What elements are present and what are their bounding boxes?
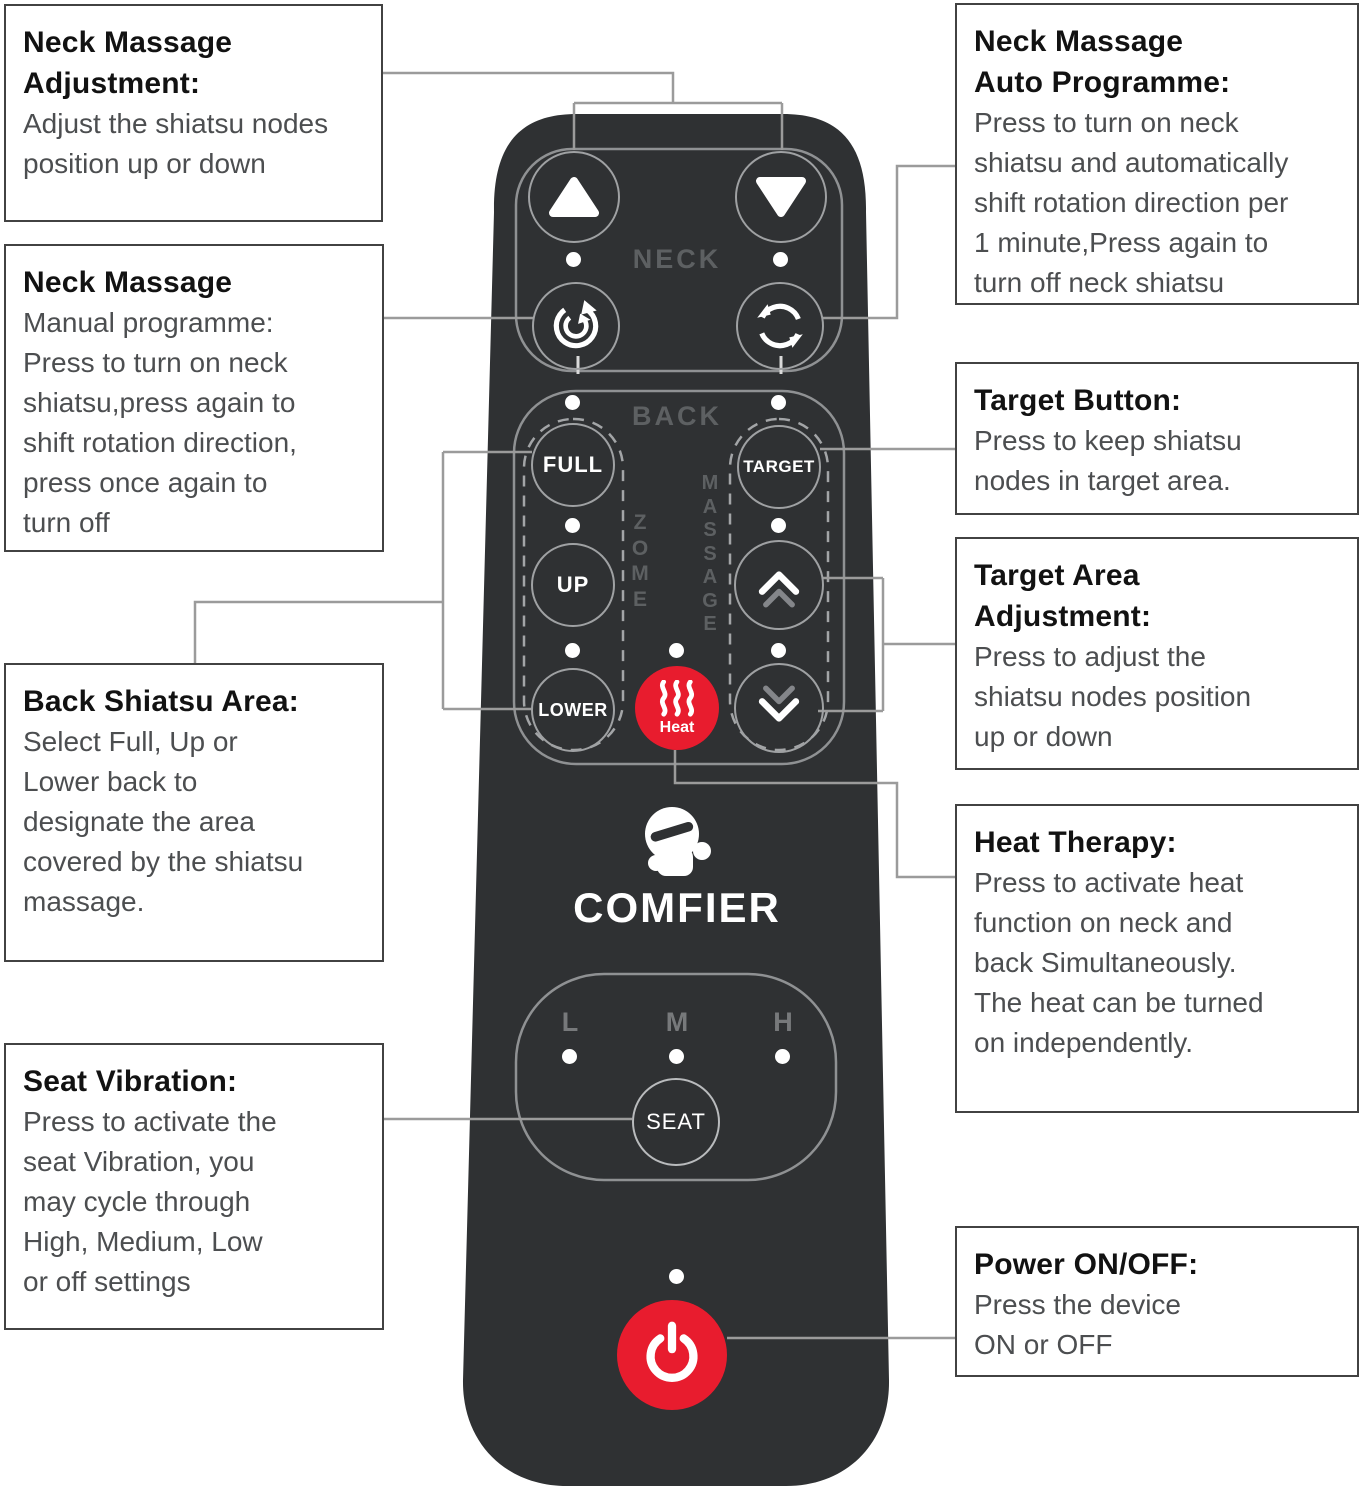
callout-title: Back Shiatsu Area:	[23, 681, 372, 722]
back-full-button[interactable]: FULL	[531, 423, 615, 507]
led-dot	[566, 252, 581, 267]
back-target-button[interactable]: TARGET	[737, 425, 821, 509]
led-dot	[771, 518, 786, 533]
double-chevron-down-icon	[749, 684, 809, 732]
triangle-up-icon	[548, 174, 600, 220]
callout-heat-therapy: Heat Therapy: Press to activate heat fun…	[955, 804, 1359, 1113]
callout-body: Select Full, Up or Lower back to designa…	[23, 722, 372, 922]
double-chevron-up-icon	[749, 561, 809, 609]
led-dot	[775, 1049, 790, 1064]
heat-button-label: Heat	[660, 719, 695, 737]
led-dot	[771, 395, 786, 410]
seat-level-high-label: H	[763, 1007, 803, 1038]
led-dot	[562, 1049, 577, 1064]
rotate-ccw-icon	[751, 297, 809, 355]
seat-level-low-label: L	[550, 1007, 590, 1038]
neck-section-label: NECK	[577, 244, 777, 275]
callout-title: Power ON/OFF:	[974, 1244, 1347, 1285]
callout-power: Power ON/OFF: Press the device ON or OFF	[955, 1226, 1359, 1377]
brand-logo-text: COMFIER	[527, 884, 827, 932]
led-dot	[565, 643, 580, 658]
massage-vertical-label: M A S S A G E	[698, 472, 722, 637]
callout-body: Adjust the shiatsu nodes position up or …	[23, 104, 371, 184]
led-dot	[669, 1049, 684, 1064]
led-dot	[773, 252, 788, 267]
led-dot	[669, 1269, 684, 1284]
callout-neck-manual: Neck Massage Manual programme: Press to …	[4, 244, 384, 552]
target-area-down-button[interactable]	[734, 663, 824, 753]
callout-title: Neck Massage Adjustment:	[23, 22, 371, 104]
led-dot	[565, 395, 580, 410]
power-icon	[635, 1318, 709, 1392]
callout-title: Neck Massage	[23, 262, 372, 303]
back-up-button[interactable]: UP	[531, 543, 615, 627]
callout-body: Press to keep shiatsu nodes in target ar…	[974, 421, 1347, 501]
callout-body: Press to adjust the shiatsu nodes positi…	[974, 637, 1347, 757]
heat-waves-icon	[656, 680, 698, 718]
neck-down-button[interactable]	[735, 151, 827, 243]
callout-title: Seat Vibration:	[23, 1061, 372, 1102]
led-dot	[669, 643, 684, 658]
callout-neck-adjustment: Neck Massage Adjustment: Adjust the shia…	[4, 4, 383, 222]
annotated-remote-diagram: Neck Massage Adjustment: Adjust the shia…	[0, 0, 1363, 1500]
callout-title: Neck Massage Auto Programme:	[974, 21, 1347, 103]
led-dot	[771, 643, 786, 658]
callout-body: Manual programme: Press to turn on neck …	[23, 303, 372, 543]
callout-body: Press to activate the seat Vibration, yo…	[23, 1102, 372, 1302]
callout-neck-auto: Neck Massage Auto Programme: Press to tu…	[955, 3, 1359, 305]
callout-target-area: Target Area Adjustment: Press to adjust …	[955, 537, 1359, 770]
neck-manual-rotate-button[interactable]	[532, 282, 620, 370]
rotate-cw-icon	[547, 297, 605, 355]
callout-title: Target Area Adjustment:	[974, 555, 1347, 637]
led-dot	[565, 518, 580, 533]
callout-body: Press to turn on neck shiatsu and automa…	[974, 103, 1347, 303]
callout-back-shiatsu: Back Shiatsu Area: Select Full, Up or Lo…	[4, 663, 384, 962]
callout-title: Target Button:	[974, 380, 1347, 421]
heat-button[interactable]: Heat	[635, 666, 719, 750]
callout-seat-vibration: Seat Vibration: Press to activate the se…	[4, 1043, 384, 1330]
callout-body: Press the device ON or OFF	[974, 1285, 1347, 1365]
callout-title: Heat Therapy:	[974, 822, 1347, 863]
back-lower-button[interactable]: LOWER	[531, 668, 615, 752]
callout-target-button: Target Button: Press to keep shiatsu nod…	[955, 362, 1359, 515]
target-area-up-button[interactable]	[734, 540, 824, 630]
zone-vertical-label: Z O M E	[628, 510, 652, 612]
power-button[interactable]	[617, 1300, 727, 1410]
seat-button[interactable]: SEAT	[632, 1078, 720, 1166]
back-section-label: BACK	[577, 401, 777, 432]
callout-body: Press to activate heat function on neck …	[974, 863, 1347, 1063]
neck-auto-rotate-button[interactable]	[736, 282, 824, 370]
triangle-down-icon	[755, 174, 807, 220]
seat-level-medium-label: M	[657, 1007, 697, 1038]
neck-up-button[interactable]	[528, 151, 620, 243]
